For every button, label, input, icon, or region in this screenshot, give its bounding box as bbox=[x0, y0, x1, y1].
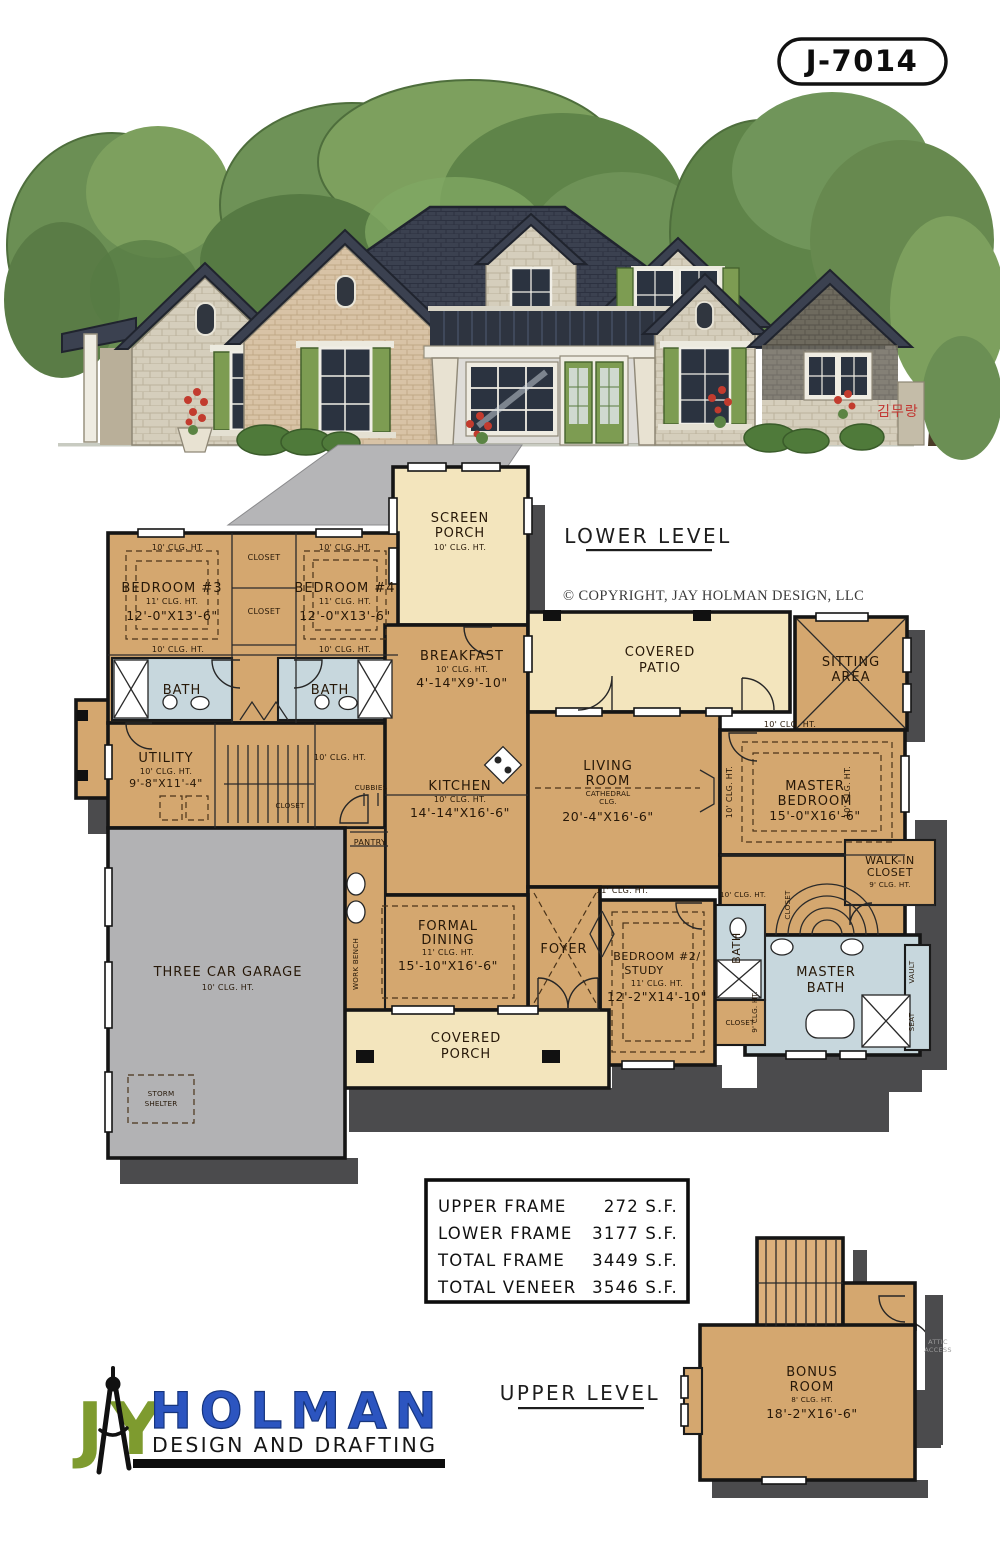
label-living-5: 20'-4"X16'-6" bbox=[562, 809, 653, 824]
label-cubbies: CUBBIES bbox=[355, 783, 388, 792]
label-wic-2: CLOSET bbox=[867, 866, 913, 879]
left-porch bbox=[62, 318, 136, 445]
label-kitchen-2: 10' CLG. HT. bbox=[434, 795, 486, 804]
label-breakfast-3: 4'-14"X9'-10" bbox=[416, 675, 507, 690]
label-bonus-2: ROOM bbox=[790, 1380, 835, 1395]
label-clg10-c: 10' CLG. HT. bbox=[152, 645, 204, 654]
label-clg10-b: 10' CLG. HT. bbox=[319, 543, 371, 552]
label-porch-2: PORCH bbox=[441, 1047, 491, 1062]
sqft-table: UPPER FRAME 272 S.F. LOWER FRAME 3177 S.… bbox=[426, 1180, 688, 1302]
label-bedroom4-3: 12'-0"X13'-6" bbox=[299, 608, 390, 623]
house-rendering: 김무랑 bbox=[4, 80, 1000, 525]
label-sitting-1: SITTING bbox=[822, 655, 880, 670]
label-sitting-2: AREA bbox=[831, 670, 870, 685]
room-living bbox=[528, 712, 720, 887]
sqft-row2-value: 3177 S.F. bbox=[592, 1224, 678, 1243]
label-storm-1: STORM bbox=[148, 1089, 175, 1098]
label-master-2: BEDROOM bbox=[778, 794, 853, 809]
plan-number-badge: J-7014 bbox=[779, 39, 946, 84]
company-logo: J Y HOLMAN DESIGN AND DRAFTING bbox=[72, 1368, 445, 1472]
label-clg10-master-w: 10' CLG. HT. bbox=[725, 766, 734, 818]
artist-signature: 김무랑 bbox=[877, 404, 919, 420]
label-dining-1: FORMAL bbox=[418, 919, 478, 934]
label-storm-2: SHELTER bbox=[145, 1099, 178, 1108]
label-closet-hall: CLOSET bbox=[783, 890, 792, 920]
plan-number: J-7014 bbox=[804, 44, 919, 78]
sqft-row4-label: TOTAL VENEER bbox=[437, 1278, 576, 1297]
label-bedroom2-1: BEDROOM #2/ bbox=[613, 950, 700, 963]
label-attic-1: ATTIC bbox=[928, 1338, 948, 1346]
sqft-row3-value: 3449 S.F. bbox=[592, 1251, 678, 1270]
label-dining-2: DINING bbox=[421, 933, 474, 948]
label-clg10-hall2: 10' CLG. HT. bbox=[720, 890, 766, 899]
label-utility-1: UTILITY bbox=[138, 751, 193, 766]
lower-title-underline bbox=[586, 549, 712, 551]
label-foyer: FOYER bbox=[540, 942, 587, 957]
label-utility-2: 10' CLG. HT. bbox=[140, 767, 192, 776]
label-breakfast-2: 10' CLG. HT. bbox=[436, 665, 488, 674]
upper-title-underline bbox=[518, 1407, 644, 1409]
label-patio-1: COVERED bbox=[625, 645, 695, 660]
label-bedroom3-3: 12'-0"X13'-6" bbox=[126, 608, 217, 623]
label-bedroom3-1: BEDROOM #3 bbox=[121, 581, 222, 596]
sqft-row2-label: LOWER FRAME bbox=[438, 1224, 572, 1243]
sqft-row1-value: 272 S.F. bbox=[604, 1197, 678, 1216]
label-clg10-hall: 10' CLG. HT. bbox=[314, 753, 366, 762]
label-patio-2: PATIO bbox=[639, 661, 681, 676]
label-bonus-4: 18'-2"X16'-6" bbox=[766, 1406, 857, 1421]
upper-level-title: UPPER LEVEL bbox=[500, 1381, 660, 1405]
label-master-1: MASTER bbox=[785, 779, 845, 794]
logo-holman: HOLMAN bbox=[150, 1382, 445, 1440]
label-bedroom3-2: 11' CLG. HT. bbox=[146, 597, 198, 606]
label-bedroom2-2: STUDY bbox=[624, 964, 663, 977]
label-screen-porch-2: PORCH bbox=[435, 526, 485, 541]
label-breakfast-1: BREAKFAST bbox=[420, 649, 504, 664]
label-seat: SEAT bbox=[907, 1012, 916, 1031]
plan-sheet: 김무랑 J-7014 LOWER LEVEL © COPYRIGHT, JAY … bbox=[0, 0, 1000, 1545]
logo-tagline: DESIGN AND DRAFTING bbox=[152, 1433, 437, 1457]
lower-level-title: LOWER LEVEL bbox=[564, 524, 732, 548]
room-garage bbox=[108, 828, 345, 1158]
label-bedroom4-2: 11' CLG. HT. bbox=[319, 597, 371, 606]
label-screen-porch-3: 10' CLG. HT. bbox=[434, 543, 486, 552]
label-utility-3: 9'-8"X11'-4" bbox=[129, 777, 203, 790]
label-living-1: LIVING bbox=[583, 759, 633, 774]
label-clg10-a: 10' CLG. HT. bbox=[152, 543, 204, 552]
label-clg11-foyer: 11' CLG. HT. bbox=[596, 886, 648, 895]
label-bath-left: BATH bbox=[163, 683, 202, 698]
logo-underline-bar bbox=[133, 1459, 445, 1468]
label-wic-3: 9' CLG. HT. bbox=[869, 880, 910, 889]
sqft-row1-label: UPPER FRAME bbox=[438, 1197, 567, 1216]
label-pantry: PANTRY bbox=[354, 838, 386, 847]
label-bonus-1: BONUS bbox=[786, 1365, 837, 1380]
sqft-row4-value: 3546 S.F. bbox=[592, 1278, 678, 1297]
label-master-bath-1: MASTER bbox=[796, 965, 856, 980]
label-screen-porch-1: SCREEN bbox=[431, 511, 490, 526]
label-kitchen-1: KITCHEN bbox=[428, 779, 491, 794]
label-bedroom4-1: BEDROOM #4 bbox=[294, 581, 395, 596]
label-clg10-master: 10' CLG. HT. bbox=[764, 720, 816, 729]
label-living-2: ROOM bbox=[586, 774, 631, 789]
label-closet-2: CLOSET bbox=[248, 607, 281, 616]
label-garage-1: THREE CAR GARAGE bbox=[153, 965, 303, 980]
label-closet-1: CLOSET bbox=[248, 553, 281, 562]
plan-sheet-svg: 김무랑 J-7014 LOWER LEVEL © COPYRIGHT, JAY … bbox=[0, 0, 1000, 1545]
label-kitchen-3: 14'-14"X16'-6" bbox=[410, 805, 510, 820]
label-master-bath-2: BATH bbox=[807, 981, 846, 996]
label-clg10-d: 10' CLG. HT. bbox=[319, 645, 371, 654]
label-attic-2: ACCESS bbox=[924, 1346, 952, 1354]
label-living-4: CLG. bbox=[599, 797, 617, 806]
label-garage-2: 10' CLG. HT. bbox=[202, 983, 254, 992]
label-master-3: 15'-0"X16'-6" bbox=[769, 808, 860, 823]
label-bedroom2-3: 11' CLG. HT. bbox=[631, 979, 683, 988]
copyright-text: © COPYRIGHT, JAY HOLMAN DESIGN, LLC bbox=[563, 588, 864, 604]
label-dining-4: 15'-10"X16'-6" bbox=[398, 958, 498, 973]
label-porch-1: COVERED bbox=[431, 1031, 501, 1046]
label-bonus-3: 8' CLG. HT. bbox=[791, 1395, 832, 1404]
label-bath-right: BATH bbox=[311, 683, 350, 698]
label-dining-3: 11' CLG. HT. bbox=[422, 948, 474, 957]
label-closet-stairs: CLOSET bbox=[275, 801, 305, 810]
label-clg9-mb: 9' CLG. HT. bbox=[750, 991, 759, 1032]
label-work-bench: WORK BENCH bbox=[351, 938, 360, 990]
label-bath2: BATH bbox=[730, 932, 743, 964]
label-vault: VAULT bbox=[907, 960, 916, 983]
sqft-row3-label: TOTAL FRAME bbox=[437, 1251, 565, 1270]
label-bedroom2-4: 12'-2"X14'-10" bbox=[607, 989, 707, 1004]
upper-level-plan: ATTIC ACCESS BONUS ROOM 8' CLG. HT. 18'-… bbox=[681, 1238, 952, 1498]
